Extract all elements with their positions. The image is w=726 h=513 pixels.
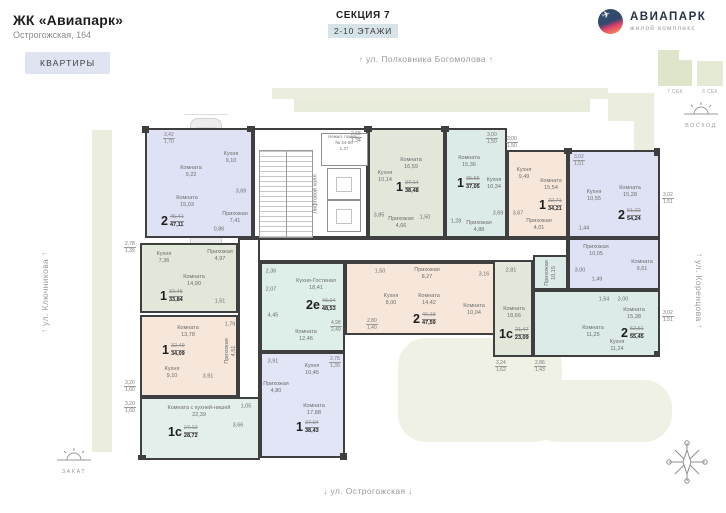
room-label: Прихожая4,80: [263, 381, 289, 395]
greenery-strip: [272, 88, 608, 99]
sunrise-icon: [682, 100, 720, 117]
apartment-number: 2е46,0448,53: [306, 298, 336, 312]
room-label: 2,81: [506, 268, 517, 275]
apartment-2[interactable]: Кухня7,36 Прихожая4,97 Комната14,90 1,51…: [140, 243, 238, 313]
wall-column: [564, 148, 572, 154]
room-label: Прихожая10,05: [583, 244, 609, 258]
greenery-strip: [92, 130, 112, 452]
minimap-section-6[interactable]: [697, 61, 723, 86]
room-label: Прихожая4,51: [224, 338, 238, 364]
wall-column: [142, 126, 149, 133]
parking-line: [184, 114, 228, 115]
minimap-section-7[interactable]: [658, 50, 692, 86]
room-label: Кухня10,14: [378, 170, 393, 184]
room-label: Кухня-Гостиная18,41: [296, 278, 336, 292]
minimap-label-6: 6 СЕК: [697, 89, 723, 95]
room-label: 0,86: [214, 227, 225, 234]
apartment-12[interactable]: Прихожая10,15: [533, 255, 568, 290]
room-label: 1,50: [420, 215, 431, 222]
compass-icon: [666, 440, 708, 489]
room-label: Кухня9,10: [165, 366, 180, 380]
room-label: Комната15,54: [540, 178, 562, 192]
room-label: Комната15,03: [176, 195, 198, 209]
balcony-label: 3,001,50: [506, 136, 518, 150]
balcony-label: 2,781,39: [329, 356, 341, 370]
apartment-number: 246,1947,59: [413, 312, 436, 326]
room-label: Кухня7,36: [157, 251, 172, 265]
page: ЖК «Авиапарк» Острогожская, 164 КВАРТИРЫ…: [0, 0, 726, 513]
elevator-hall-label: Лифтовой холл: [313, 174, 320, 213]
balcony-label: 3,241,62: [495, 360, 507, 374]
balcony-label: 3,021,51: [573, 154, 585, 168]
room-label: Кухня10,45: [305, 363, 320, 377]
apartment-11[interactable]: Прихожая10,05 Комната9,61 3,00 1,49: [568, 238, 660, 290]
apartment-number: 132,4533,84: [160, 289, 183, 303]
apartment-1[interactable]: Комната9,22 Кухня9,10 Комната15,03 Прихо…: [145, 128, 253, 238]
corridor: [253, 238, 568, 262]
room-label: Комната9,61: [631, 259, 653, 273]
room-label: Комната14,42: [418, 293, 440, 307]
building-core: Нежил. помещ.№ 44-501,47 Лифтовой холл: [253, 128, 368, 238]
courtyard-lawn: [530, 380, 672, 442]
room-label: Комната15,36: [458, 155, 480, 169]
room-label: Комната12,46: [295, 329, 317, 343]
room-label: 1,54: [599, 297, 610, 304]
room-label: 2,07: [266, 287, 277, 294]
wall-column: [340, 453, 347, 460]
room-label: Прихожая4,88: [466, 220, 492, 234]
balcony-label: 2,861,43: [534, 360, 546, 374]
greenery-strip: [294, 99, 590, 112]
apartment-number: 245,4147,11: [161, 214, 184, 228]
room-label: 3,91: [268, 359, 279, 366]
street-bottom: ↓ ул. Острогожская ↓: [288, 486, 448, 496]
room-label: Кухня10,34: [487, 177, 502, 191]
sunset-marker: ЗАКАТ: [48, 446, 100, 475]
address: Острогожская, 164: [13, 30, 91, 40]
room-label: 3,00: [575, 268, 586, 275]
wall-column: [247, 126, 255, 132]
elevator[interactable]: [327, 168, 361, 200]
room-label: Комната15,28: [619, 185, 641, 199]
apartment-number: 137,1438,48: [396, 180, 419, 194]
section-header: СЕКЦИЯ 7 2-10 ЭТАЖИ: [318, 10, 408, 39]
room-label: Комната16,59: [400, 157, 422, 171]
room-label: 3,16: [479, 272, 490, 279]
street-right: ↑ ул. Коренцова ↑: [694, 198, 704, 383]
apartment-8[interactable]: Кухня10,14 Комната16,59 Прихожая4,66 3,8…: [368, 128, 445, 238]
room-label: Прихожая7,41: [222, 211, 248, 225]
wall-column: [364, 126, 372, 132]
room-label: 4,45: [268, 313, 279, 320]
apartment-12[interactable]: Комната15,38 Комната11,25 Кухня11,24 1,5…: [533, 290, 660, 357]
room-label: 3,69: [493, 211, 504, 218]
plane-icon: ✈: [601, 9, 612, 22]
arrow-up-icon: ↑: [359, 55, 363, 64]
balcony-label: 2,681,34: [350, 131, 362, 145]
room-label: 1,05: [241, 404, 252, 411]
balcony-label: 3,021,51: [662, 310, 674, 324]
stairs[interactable]: [259, 150, 313, 238]
apartments-button[interactable]: КВАРТИРЫ: [25, 52, 110, 74]
room-label: Кухня10,55: [587, 189, 602, 203]
room-label: Кухня11,24: [610, 339, 625, 353]
balcony-label: 3,421,70: [163, 132, 175, 146]
apartment-number: 1с21,4723,09: [499, 327, 529, 341]
room-label: Прихожая10,15: [544, 260, 558, 286]
apartment-10[interactable]: Кухня9,49 Комната15,54 Прихожая4,01 3,67…: [507, 150, 568, 238]
sunrise-marker: ВОСХОД: [678, 100, 724, 129]
apartment-3[interactable]: Комната13,78 1,79 Прихожая4,51 Кухня9,10…: [140, 315, 238, 397]
apartment-number: 137,0438,43: [296, 420, 319, 434]
balcony-label: 2,781,39: [124, 241, 136, 255]
apartment-number: 132,4934,09: [162, 343, 185, 357]
arrow-up-icon: ↑: [489, 55, 493, 64]
arrow-icon: ↑: [695, 324, 704, 328]
room-label: Комната9,22: [180, 165, 202, 179]
apartment-6[interactable]: Кухня-Гостиная18,41 Комната12,46 2,36 2,…: [260, 262, 345, 352]
greenery-strip: [608, 93, 654, 121]
arrow-down-icon: ↓: [408, 487, 412, 496]
sunset-icon: [55, 446, 93, 463]
apartment-number: 251,2254,24: [618, 208, 641, 222]
logo-subtitle: жилой комплекс: [630, 25, 706, 32]
arrow-icon: ↑: [40, 329, 49, 333]
logo-name: АВИАПАРК: [630, 11, 706, 23]
apartment-number: 1с27,1228,72: [168, 425, 198, 439]
logo[interactable]: ✈ АВИАПАРК жилой комплекс: [598, 9, 706, 34]
logo-icon: ✈: [598, 9, 623, 34]
room-label: Комната17,88: [303, 403, 325, 417]
page-title: ЖК «Авиапарк»: [13, 12, 123, 28]
room-label: 1,44: [579, 226, 590, 233]
room-label: Комната18,66: [503, 306, 525, 320]
balcony-label: 4,982,49: [330, 320, 342, 334]
street-top: ↑ ул. Полковника Богомолова ↑: [298, 54, 554, 64]
room-label: Комната15,38: [623, 307, 645, 321]
room-label: Комната14,90: [183, 274, 205, 288]
corridor: [238, 238, 260, 402]
apartment-number: 132,7134,21: [539, 198, 562, 212]
wall-column: [654, 351, 660, 357]
apartment-number: 135,5537,05: [457, 176, 480, 190]
street-left: ↑ ул. Ключникова ↑: [40, 205, 50, 380]
room-label: 3,66: [233, 423, 244, 430]
room-label: Прихожая8,27: [414, 267, 440, 281]
balcony-label: 3,201,60: [124, 401, 136, 415]
room-label: Комната10,04: [463, 303, 485, 317]
room-label: Комната11,25: [582, 325, 604, 339]
apartment-number: 252,5155,45: [621, 326, 644, 340]
floors-badge: 2-10 ЭТАЖИ: [328, 24, 398, 38]
room-label: 1,49: [592, 277, 603, 284]
room-label: Прихожая4,97: [207, 249, 233, 263]
balcony-label: 3,201,60: [124, 380, 136, 394]
room-label: Кухня9,49: [517, 167, 532, 181]
room-label: 3,91: [203, 374, 214, 381]
apartment-13[interactable]: Комната18,66 2,81 1с21,4723,09: [493, 255, 533, 357]
room-label: 1,79: [225, 322, 236, 329]
room-label: Прихожая4,01: [526, 218, 552, 232]
arrow-icon: ↑: [695, 253, 704, 257]
room-label: Прихожая4,66: [388, 216, 414, 230]
section-title: СЕКЦИЯ 7: [318, 10, 408, 21]
arrow-icon: ↑: [40, 252, 49, 256]
room-label: Кухня9,10: [224, 151, 239, 165]
wall-column: [441, 126, 449, 132]
room-label: Комната13,78: [177, 325, 199, 339]
balcony-label: 3,001,50: [486, 132, 498, 146]
room-label: 1,50: [375, 269, 386, 276]
elevator[interactable]: [327, 200, 361, 232]
room-label: 1,51: [215, 299, 226, 306]
balcony-label: 3,021,51: [662, 192, 674, 206]
room-label: 2,36: [266, 269, 277, 276]
room-label: 3,69: [236, 189, 247, 196]
wall-column: [654, 148, 660, 156]
wall-column: [138, 455, 146, 460]
room-label: Комната с кухней-нишей22,39: [168, 405, 231, 419]
apartment-4[interactable]: Комната с кухней-нишей22,39 1,05 3,66 1с…: [140, 397, 260, 460]
room-label: 1,28: [451, 219, 462, 226]
arrow-down-icon: ↓: [323, 487, 327, 496]
room-label: 3,67: [513, 211, 524, 218]
room-label: 3,85: [374, 213, 385, 220]
room-label: Кухня8,00: [384, 293, 399, 307]
greenery-strip: [634, 121, 654, 151]
balcony-label: 2,801,40: [366, 318, 378, 332]
minimap-label-7: 7 СЕК: [658, 89, 692, 95]
room-label: 3,00: [618, 297, 629, 304]
